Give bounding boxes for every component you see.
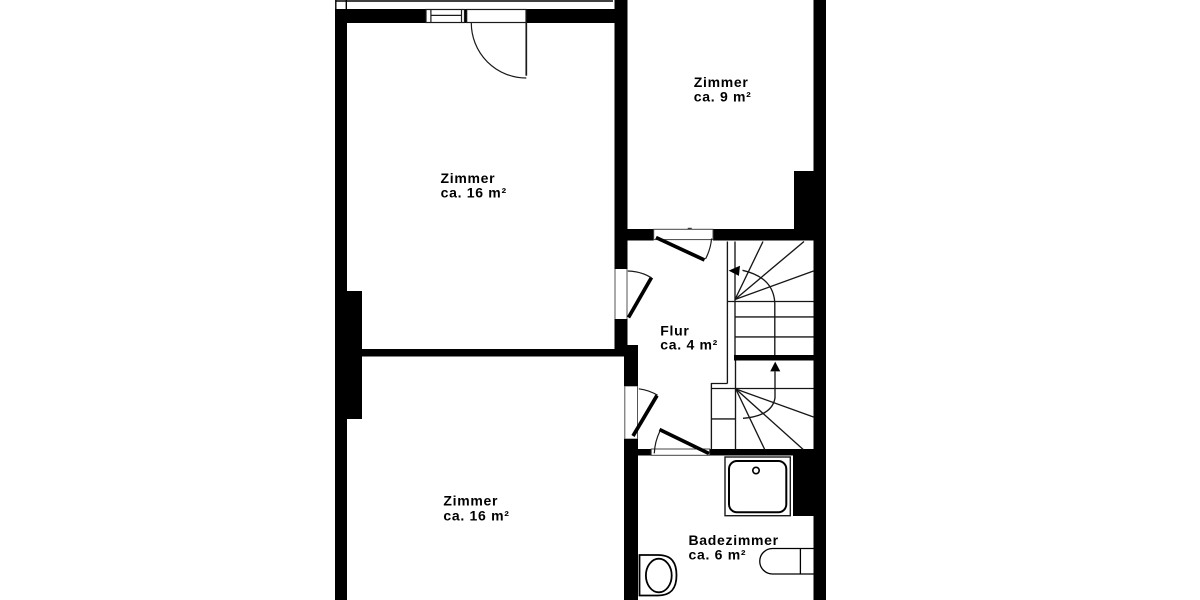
svg-text:ca. 16 m²: ca. 16 m²	[443, 508, 509, 524]
svg-text:ca. 9 m²: ca. 9 m²	[694, 89, 752, 105]
svg-text:ca. 6 m²: ca. 6 m²	[689, 547, 747, 563]
svg-text:Zimmer: Zimmer	[443, 493, 498, 509]
svg-text:ca. 4 m²: ca. 4 m²	[660, 337, 718, 353]
svg-text:ca. 16 m²: ca. 16 m²	[441, 184, 507, 200]
